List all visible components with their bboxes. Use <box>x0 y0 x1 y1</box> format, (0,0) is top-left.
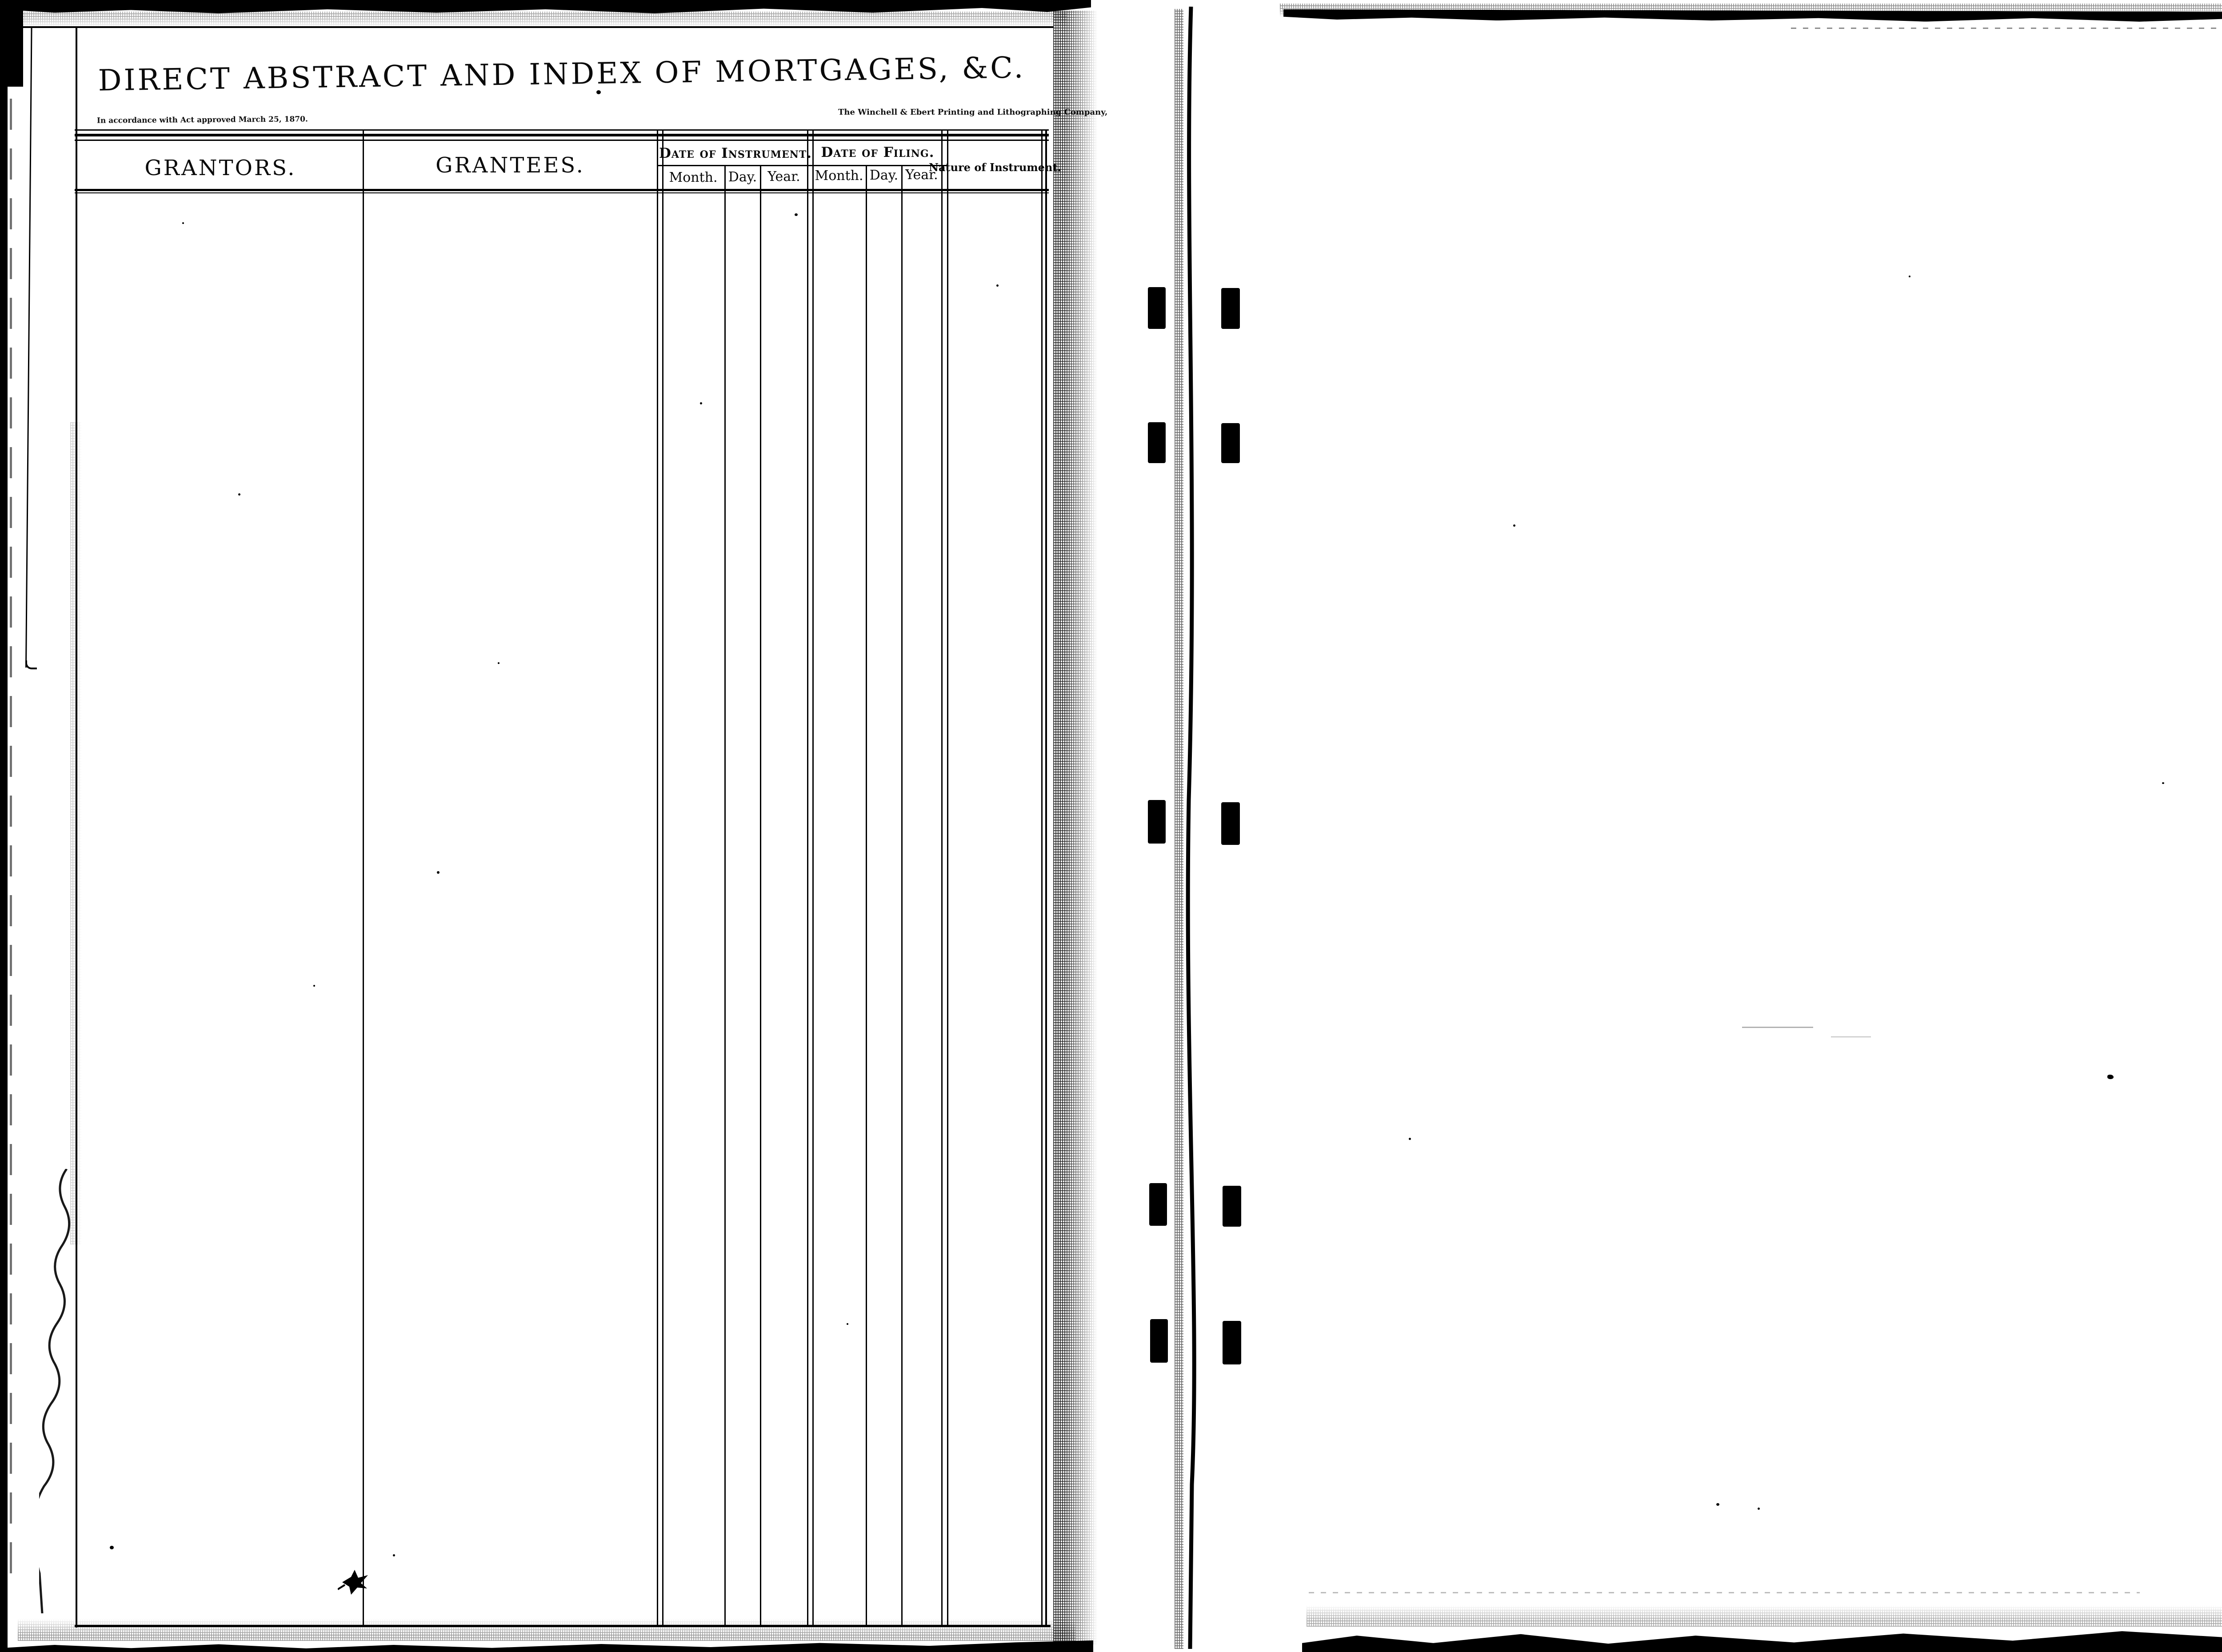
subcolumn-filing-month: Month. <box>815 168 863 184</box>
deckle-edge-squiggle <box>39 1169 92 1613</box>
scan-left-edge-band <box>0 0 8 1652</box>
subcolumn-filing-year: Year. <box>905 167 938 183</box>
divider-filing-nature-b <box>947 129 948 1627</box>
right-page <box>1238 0 2222 1652</box>
ink-speck <box>2162 782 2164 784</box>
spine-crease-line <box>1164 0 1218 1652</box>
subcolumn-filing-day: Day. <box>870 168 898 183</box>
ink-speck <box>313 985 315 987</box>
column-group-date-of-instrument: Date of Instrument. <box>659 145 812 161</box>
subcolumn-instrument-day: Day. <box>728 169 757 185</box>
table-left-border-noise <box>70 422 82 1244</box>
subcolumn-instrument-year: Year. <box>767 169 800 184</box>
ink-speck <box>847 1323 848 1325</box>
binding-slot <box>1221 288 1240 329</box>
divider-filing-month-day <box>866 165 867 1627</box>
left-page-edge-noise <box>1053 11 1098 1644</box>
table-bottom-rule <box>75 1625 1051 1627</box>
scan-bottom-edge-noise <box>18 1619 1075 1641</box>
ink-speck <box>1909 276 1910 277</box>
divider-grantors-grantees <box>363 129 364 1627</box>
bottom-edge-noise <box>1307 1605 2222 1627</box>
act-note: In accordance with Act approved March 25… <box>97 115 308 125</box>
divider-inst-filing-b <box>812 129 814 1627</box>
ink-speck <box>182 222 184 224</box>
ink-speck <box>700 402 702 404</box>
column-header-grantors: GRANTORS. <box>144 156 296 180</box>
ink-speck <box>498 662 500 664</box>
ink-speck <box>1716 1503 1719 1506</box>
ink-speck <box>795 213 798 216</box>
ink-speck <box>238 493 240 496</box>
divider-filing-day-year <box>901 165 903 1627</box>
column-header-grantees: GRANTEES. <box>436 153 585 178</box>
date-group-divider-rule <box>657 165 948 166</box>
divider-inst-day-year <box>760 165 761 1627</box>
smudge <box>1831 1036 1871 1037</box>
smudge <box>1742 1027 1813 1028</box>
ink-speck <box>2107 1075 2114 1079</box>
column-group-date-of-filing: Date of Filing. <box>821 144 934 160</box>
divider-grantees-dates-b <box>662 129 663 1627</box>
table-right-border-b <box>1045 129 1047 1627</box>
binding-slot <box>1221 802 1240 845</box>
ink-speck <box>996 284 999 287</box>
page-frame-top-rule <box>11 26 1053 28</box>
ink-speck <box>393 1554 395 1556</box>
ink-speck <box>437 871 440 874</box>
top-dashed-subrule <box>1791 28 2222 29</box>
binding-slot <box>1148 287 1166 329</box>
binding-slot <box>1149 1183 1167 1226</box>
divider-filing-nature-a <box>941 129 943 1627</box>
divider-inst-month-day <box>724 165 726 1627</box>
ink-speck <box>1758 1508 1760 1510</box>
ink-blot <box>338 1568 372 1596</box>
bottom-edge-streak <box>1302 1622 2222 1652</box>
table-top-rule-2 <box>75 134 1049 136</box>
table-right-border-a <box>1041 129 1043 1627</box>
underlay-page-edge-hook <box>25 660 37 669</box>
header-bottom-rule-thin <box>75 192 1049 193</box>
left-page: DIRECT ABSTRACT AND INDEX OF MORTGAGES, … <box>0 0 1095 1652</box>
ink-speck <box>110 1546 114 1549</box>
page-frame-left-rule <box>25 28 32 668</box>
ink-speck <box>1513 524 1515 527</box>
binding-slot <box>1148 800 1166 844</box>
bottom-faint-dotted-line <box>1309 1592 2140 1593</box>
page-title: DIRECT ABSTRACT AND INDEX OF MORTGAGES, … <box>98 50 1026 97</box>
subcolumn-instrument-month: Month. <box>669 170 717 185</box>
binding-slot <box>1221 423 1240 463</box>
table-top-rule-1 <box>75 129 1049 131</box>
ink-speck <box>1409 1138 1411 1140</box>
scan-top-edge-noise <box>9 12 1067 28</box>
binding-slot <box>1150 1319 1168 1363</box>
scanned-ledger-spread: DIRECT ABSTRACT AND INDEX OF MORTGAGES, … <box>0 0 2222 1652</box>
scan-bottom-edge-band <box>0 1639 1093 1652</box>
table-top-rule-3 <box>75 140 1049 141</box>
divider-inst-filing-a <box>807 129 808 1627</box>
left-edge-sliver <box>10 40 12 1573</box>
book-gutter <box>1051 0 1238 1652</box>
ink-speck <box>596 90 601 94</box>
header-bottom-rule-thick <box>75 189 1049 191</box>
divider-grantees-dates-a <box>657 129 658 1627</box>
binding-slot <box>1148 422 1166 463</box>
